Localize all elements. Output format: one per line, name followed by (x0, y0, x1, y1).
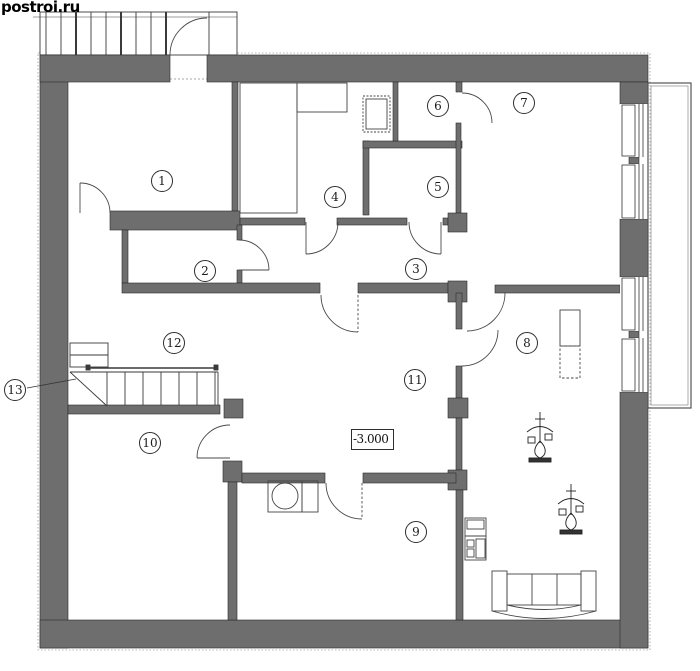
room-label-6: 6 (427, 95, 449, 117)
room-label-9: 9 (405, 521, 427, 543)
wall-top-left (40, 55, 170, 82)
column (223, 461, 242, 482)
room-label-5: 5 (427, 176, 449, 198)
room-label-1: 1 (151, 170, 173, 192)
door-room1 (80, 183, 110, 213)
door-room9 (326, 483, 362, 519)
washing-machine (268, 481, 318, 512)
door-room2 (239, 240, 269, 270)
door-room5 (409, 222, 441, 254)
wall-left (40, 55, 68, 648)
wall-right-seg3 (620, 392, 648, 648)
balcony-outline (648, 83, 691, 408)
stand-symbol (527, 412, 553, 462)
floor-plan-drawing (0, 0, 700, 671)
boiler (465, 518, 486, 560)
room-label-4: 4 (324, 186, 346, 208)
wall-right-seg2 (620, 219, 648, 277)
sofa (492, 571, 596, 619)
door-room7-room8 (467, 293, 505, 331)
column (224, 399, 243, 418)
wardrobe (560, 310, 580, 378)
door-room4 (306, 222, 338, 254)
window (620, 164, 648, 219)
room-label-7: 7 (513, 92, 535, 114)
interior-staircase (70, 343, 218, 406)
door-room11-room8 (462, 330, 498, 366)
room-label-3: 3 (405, 258, 427, 280)
room-label-2: 2 (194, 260, 216, 282)
wall-right-seg1 (620, 82, 648, 104)
watermark: postroi.ru (1, 0, 80, 16)
window (620, 277, 648, 331)
room-label-13: 13 (4, 379, 26, 401)
stove-unit (363, 96, 390, 132)
column (448, 398, 468, 418)
walls (40, 55, 648, 648)
elevation-label: -3.000 (351, 429, 394, 450)
window (620, 338, 648, 392)
door-hall-room11 (321, 295, 358, 332)
room-label-10: 10 (139, 432, 161, 454)
building-outline (38, 53, 650, 650)
stand-symbol (558, 484, 584, 534)
column (448, 213, 467, 232)
door-room6 (462, 93, 492, 123)
floor-plan: postroi.ru -3.000 12345678910111213 (0, 0, 700, 671)
wall-top-right (207, 55, 648, 82)
room-label-11: 11 (404, 369, 426, 391)
wall-bottom (40, 620, 648, 648)
door-room10 (197, 425, 230, 458)
window (620, 104, 648, 157)
room-label-8: 8 (516, 332, 538, 354)
room-label-12: 12 (163, 332, 185, 354)
